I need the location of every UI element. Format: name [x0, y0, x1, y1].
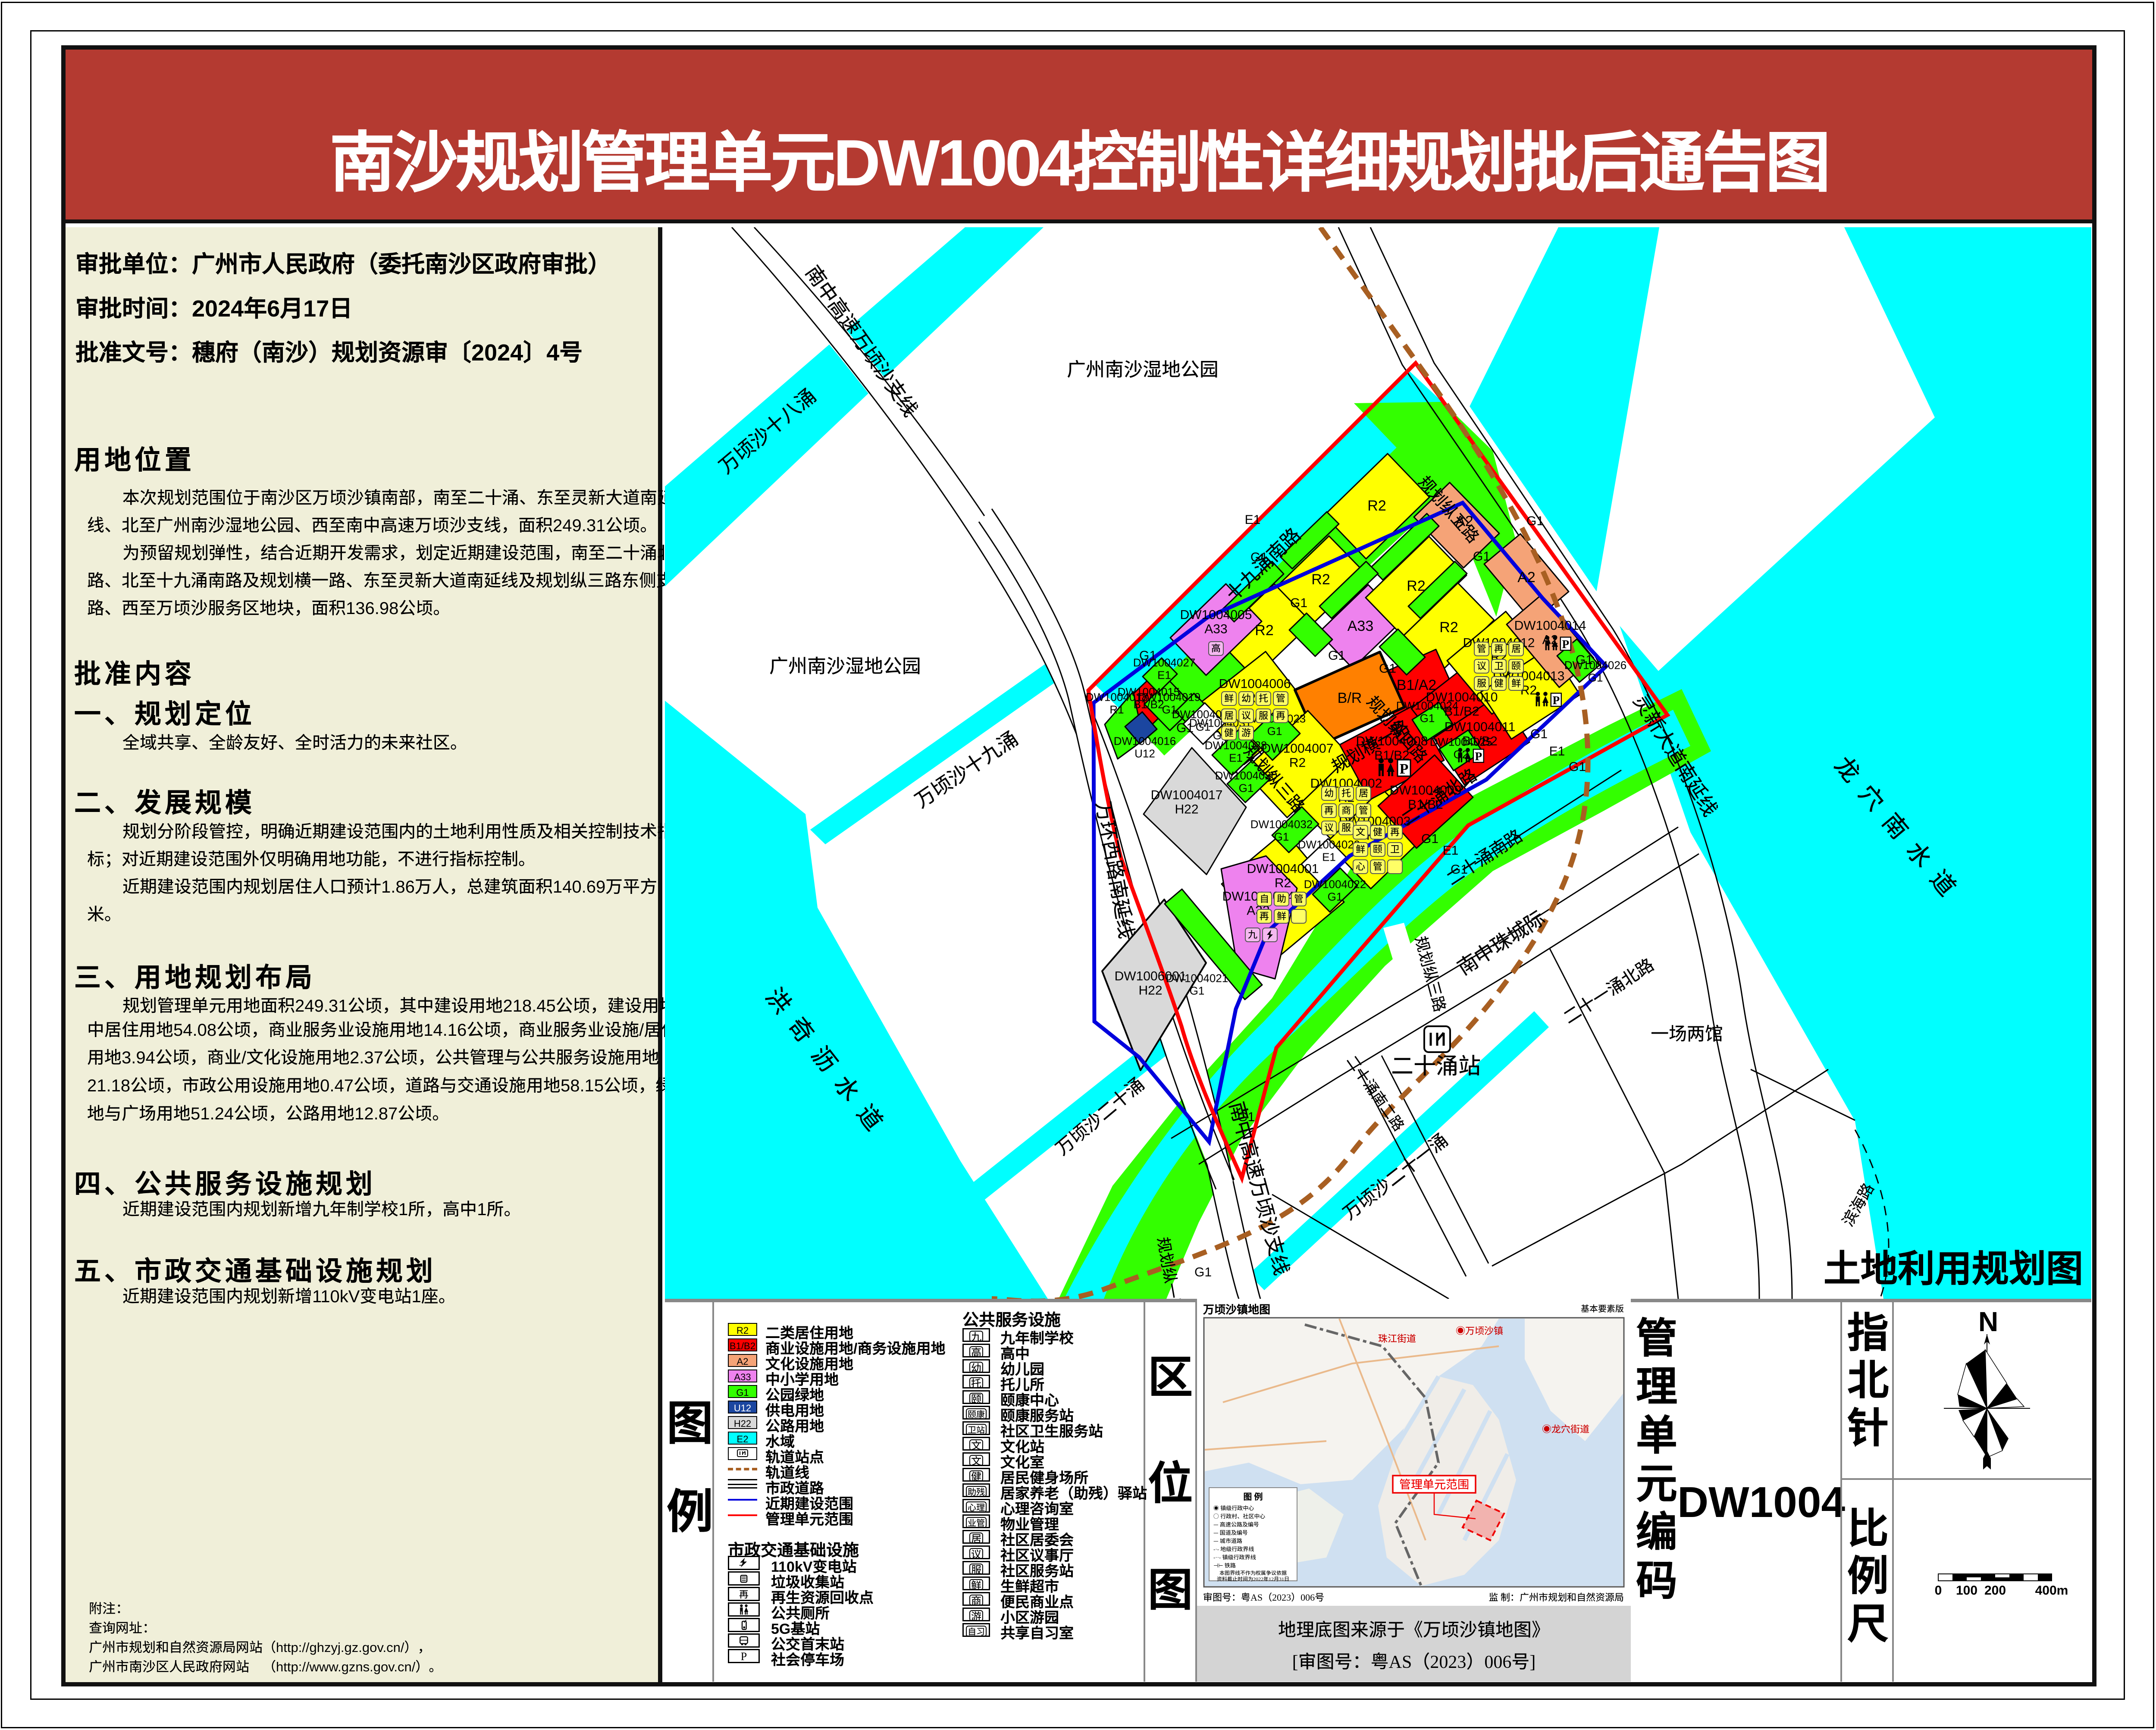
- svg-text:-··- 镇级行政界线: -··- 镇级行政界线: [1213, 1553, 1256, 1561]
- svg-text:P: P: [1400, 761, 1409, 777]
- svg-text:广州南沙湿地公园: 广州南沙湿地公园: [769, 651, 921, 678]
- svg-text:G1: G1: [1530, 723, 1548, 742]
- svg-text:颐: 颐: [1511, 658, 1521, 672]
- svg-text:商: 商: [1341, 803, 1351, 817]
- svg-text:管: 管: [1373, 859, 1382, 873]
- svg-text:一场两馆: 一场两馆: [1651, 1019, 1723, 1046]
- svg-text:G1: G1: [1250, 546, 1268, 565]
- svg-text:鲜: 鲜: [1224, 691, 1234, 705]
- svg-text:万顷沙镇地图: 万顷沙镇地图: [1203, 1301, 1270, 1317]
- svg-text:审图号：粤AS（2023）006号: 审图号：粤AS（2023）006号: [1203, 1590, 1324, 1604]
- svg-text:广州南沙湿地公园: 广州南沙湿地公园: [1067, 354, 1219, 382]
- svg-text:G1: G1: [1290, 592, 1307, 611]
- svg-text:服: 服: [1341, 820, 1351, 834]
- svg-text:○ 行政村、社区中心: ○ 行政村、社区中心: [1213, 1512, 1265, 1520]
- svg-text:健: 健: [1494, 676, 1504, 689]
- svg-text:文: 文: [1356, 824, 1365, 838]
- svg-text:再: 再: [1260, 909, 1269, 922]
- svg-text:鲜: 鲜: [1356, 842, 1365, 856]
- svg-text:再: 再: [1390, 824, 1400, 838]
- svg-text:助: 助: [1277, 891, 1286, 905]
- svg-text:土地利用规划图: 土地利用规划图: [1824, 1238, 2083, 1292]
- svg-text:◉ 镇级行政中心: ◉ 镇级行政中心: [1213, 1504, 1254, 1512]
- svg-text:A33: A33: [1347, 614, 1374, 635]
- svg-text:再: 再: [1324, 803, 1334, 817]
- svg-text:B/R: B/R: [1338, 686, 1362, 707]
- svg-text:E1: E1: [1549, 740, 1565, 759]
- svg-text:托: 托: [1259, 691, 1268, 705]
- svg-text:基本要素版: 基本要素版: [1581, 1302, 1624, 1314]
- svg-text:A2: A2: [1517, 565, 1536, 586]
- svg-text:-·- 地级行政界线: -·- 地级行政界线: [1213, 1545, 1254, 1553]
- svg-text:再: 再: [1276, 708, 1285, 722]
- svg-text:管: 管: [1477, 641, 1486, 655]
- svg-text:居: 居: [1511, 641, 1521, 655]
- svg-text:居: 居: [1224, 708, 1234, 722]
- svg-text:九: 九: [1248, 927, 1258, 941]
- svg-text:资料截止时间为2022年12月31日: 资料截止时间为2022年12月31日: [1217, 1575, 1289, 1583]
- svg-text:0: 0: [1935, 1583, 1942, 1598]
- svg-text:100: 100: [1956, 1583, 1977, 1598]
- svg-text:200: 200: [1984, 1583, 2006, 1598]
- svg-text:卫: 卫: [1494, 658, 1504, 672]
- svg-text:G1: G1: [1328, 645, 1345, 664]
- svg-text:P: P: [1562, 638, 1569, 651]
- svg-text:G1: G1: [1576, 649, 1593, 668]
- svg-text:G1: G1: [1569, 756, 1586, 775]
- svg-text:P: P: [1475, 750, 1482, 763]
- svg-text:幼: 幼: [1241, 691, 1251, 705]
- svg-text:管: 管: [1276, 691, 1285, 705]
- svg-text:服: 服: [1477, 676, 1486, 689]
- svg-text:R2: R2: [1439, 615, 1458, 636]
- svg-text:G1: G1: [1238, 1106, 1255, 1125]
- svg-text:再: 再: [1494, 641, 1504, 655]
- svg-text:地理底图来源于《万顷沙镇地图》: 地理底图来源于《万顷沙镇地图》: [1278, 1615, 1550, 1642]
- svg-text:二十涌站: 二十涌站: [1391, 1048, 1481, 1080]
- svg-text:R2: R2: [1255, 618, 1273, 639]
- svg-text:E1: E1: [1245, 509, 1261, 528]
- svg-text:G1: G1: [1473, 545, 1490, 564]
- svg-text:颐: 颐: [1373, 842, 1382, 856]
- svg-text:自: 自: [1260, 891, 1269, 905]
- svg-text:N: N: [1978, 1306, 1998, 1337]
- svg-text:鲜: 鲜: [1511, 676, 1521, 689]
- svg-text:G1: G1: [1526, 510, 1544, 529]
- svg-text:G1: G1: [1451, 859, 1468, 878]
- svg-text:管理单元范围: 管理单元范围: [1399, 1475, 1469, 1492]
- svg-text:G1: G1: [1379, 658, 1396, 677]
- svg-text:监 制：广州市规划和自然资源局: 监 制：广州市规划和自然资源局: [1489, 1590, 1624, 1604]
- svg-text:G1: G1: [1176, 717, 1194, 736]
- svg-text:鲜: 鲜: [1277, 909, 1286, 922]
- svg-text:图 例: 图 例: [1244, 1490, 1263, 1502]
- svg-text:R2: R2: [1311, 567, 1330, 589]
- svg-text:幼: 幼: [1324, 786, 1334, 799]
- svg-text:服: 服: [1259, 708, 1268, 722]
- svg-text:健: 健: [1373, 824, 1382, 838]
- svg-text:◉万顷沙镇: ◉万顷沙镇: [1456, 1323, 1503, 1337]
- svg-text:400m: 400m: [2035, 1583, 2068, 1598]
- svg-text:P: P: [1552, 694, 1560, 707]
- svg-text:心: 心: [1356, 859, 1365, 873]
- svg-text:管: 管: [1359, 803, 1368, 817]
- svg-text:议: 议: [1241, 708, 1251, 722]
- svg-text:管: 管: [1294, 891, 1304, 905]
- svg-text:[审图号：粤AS（2023）006号]: [审图号：粤AS（2023）006号]: [1292, 1647, 1536, 1674]
- svg-text:健: 健: [1224, 725, 1234, 739]
- svg-text:卫: 卫: [1390, 842, 1400, 856]
- svg-text:游: 游: [1241, 725, 1251, 739]
- svg-text:— 城市道路: — 城市道路: [1213, 1536, 1242, 1545]
- svg-text:G1: G1: [1421, 828, 1438, 847]
- svg-text:高: 高: [1211, 641, 1221, 655]
- svg-text:A2: A2: [1455, 509, 1473, 530]
- svg-text:E1: E1: [1443, 840, 1459, 859]
- svg-text:议: 议: [1324, 820, 1334, 834]
- svg-text:居: 居: [1359, 786, 1368, 799]
- svg-text:议: 议: [1477, 658, 1486, 672]
- svg-text:G1: G1: [1194, 1261, 1212, 1280]
- svg-text:G1: G1: [1139, 645, 1156, 664]
- svg-text:托: 托: [1341, 786, 1351, 799]
- svg-text:R2: R2: [1367, 494, 1386, 515]
- svg-text:— 国道及编号: — 国道及编号: [1213, 1528, 1248, 1536]
- svg-text:— 高速公路及编号: — 高速公路及编号: [1213, 1520, 1259, 1528]
- svg-text:⊣⊢ 铁路: ⊣⊢ 铁路: [1213, 1561, 1236, 1569]
- svg-text:R2: R2: [1407, 574, 1425, 595]
- svg-text:珠江街道: 珠江街道: [1378, 1331, 1416, 1345]
- svg-text:◉龙穴街道: ◉龙穴街道: [1542, 1422, 1589, 1435]
